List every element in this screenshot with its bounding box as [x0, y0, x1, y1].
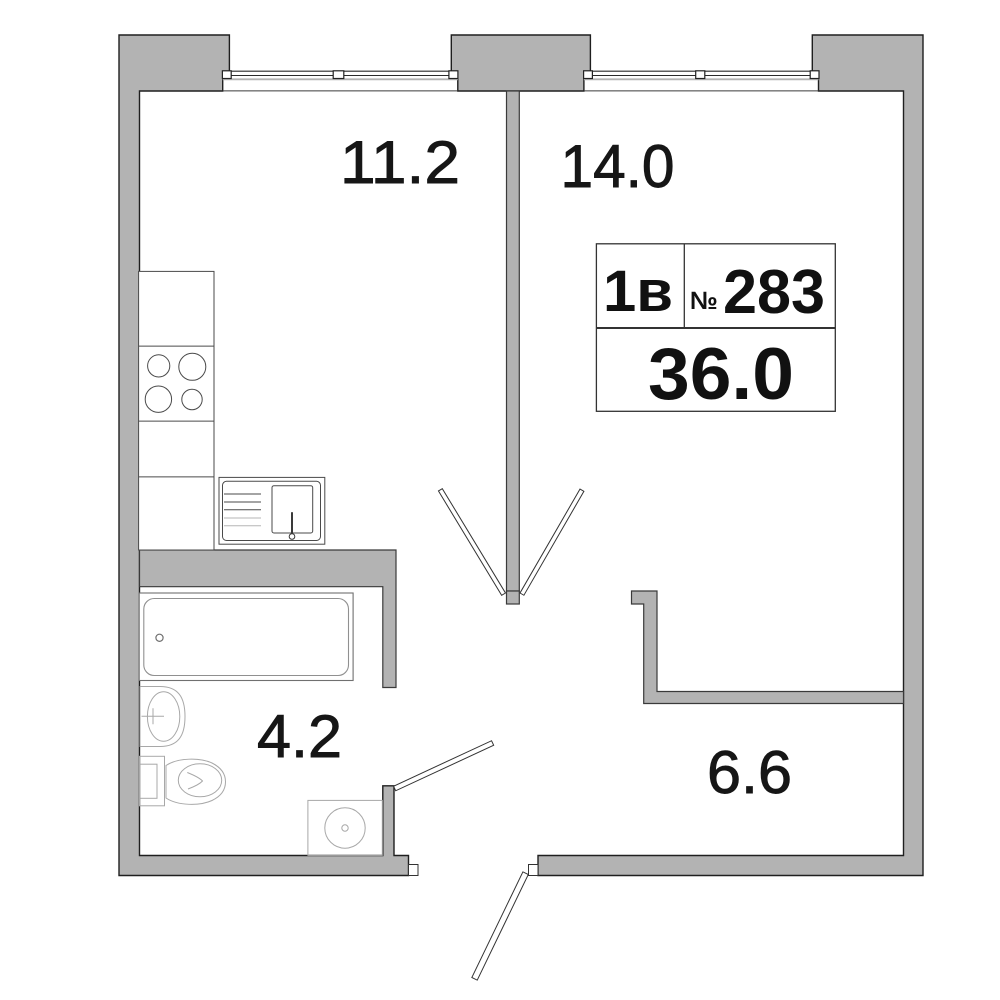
svg-text:№: № [690, 287, 718, 315]
svg-text:6.6: 6.6 [707, 739, 792, 806]
svg-text:11.2: 11.2 [340, 129, 460, 196]
svg-text:4.2: 4.2 [257, 703, 342, 770]
svg-text:14.0: 14.0 [561, 133, 675, 200]
svg-text:36.0: 36.0 [648, 334, 794, 415]
svg-text:1в: 1в [603, 259, 673, 324]
svg-text:283: 283 [723, 258, 825, 327]
